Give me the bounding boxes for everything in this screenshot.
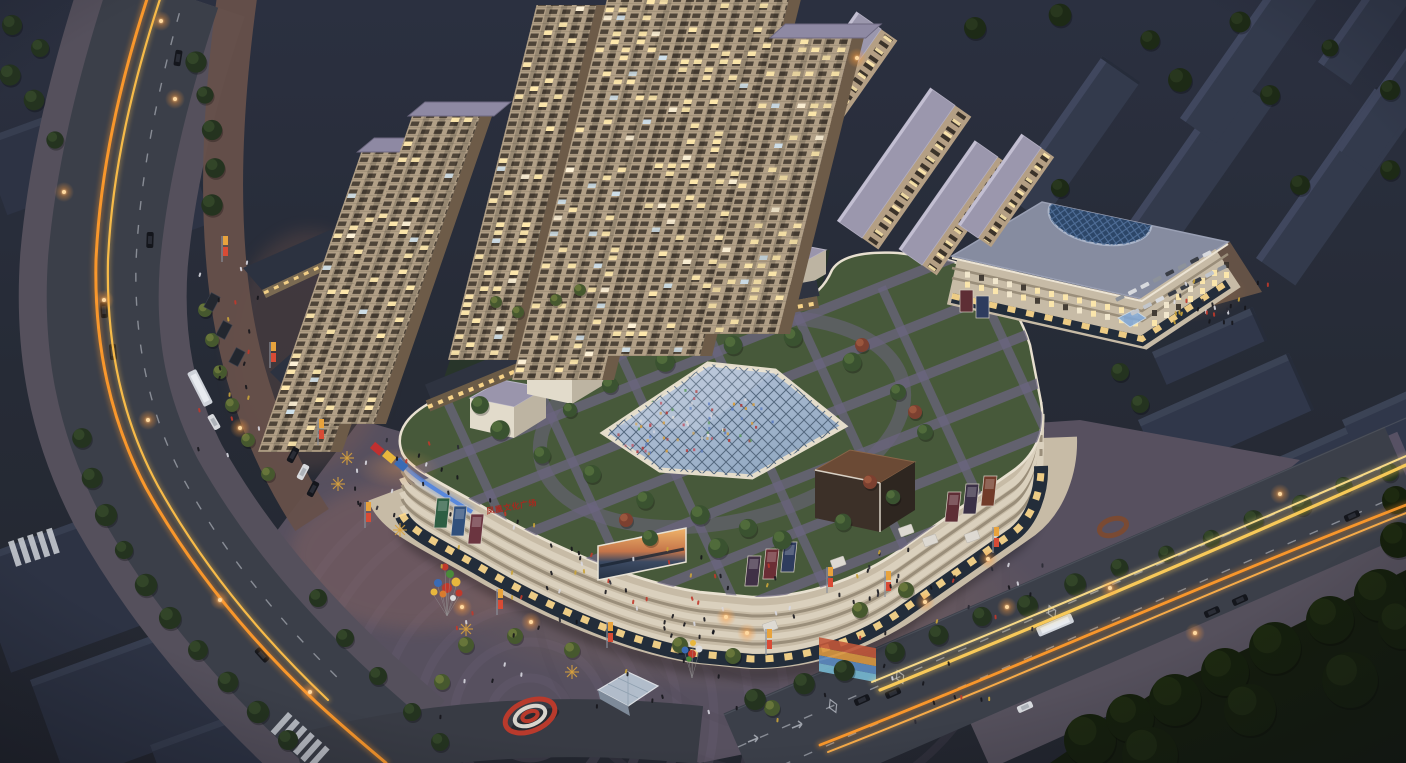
- scene-canvas: 凤凰文化广场: [0, 0, 1406, 763]
- architectural-night-rendering: 凤凰文化广场: [0, 0, 1406, 763]
- vignette-overlay: [0, 0, 1406, 763]
